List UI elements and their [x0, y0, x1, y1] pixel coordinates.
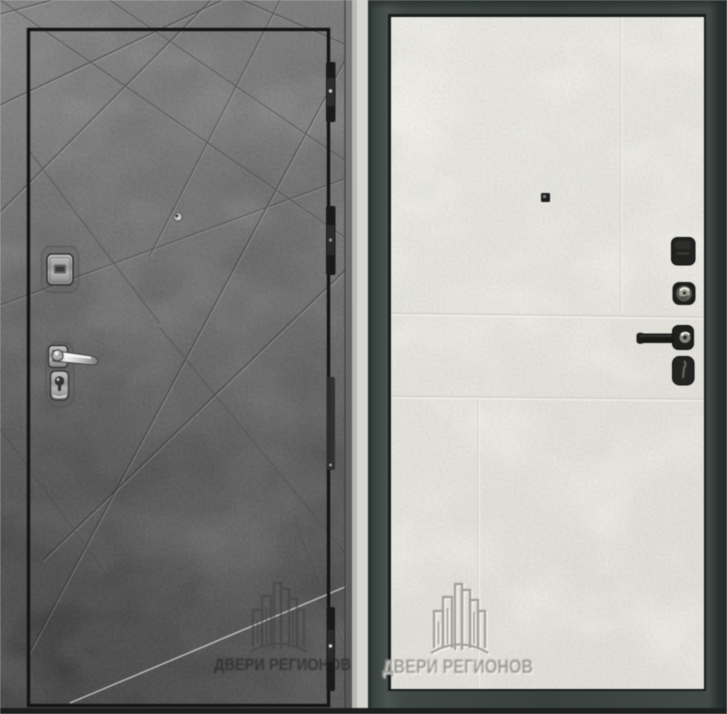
svg-text:ДВЕРИ РЕГИОНОВ: ДВЕРИ РЕГИОНОВ: [382, 657, 533, 678]
svg-text:ДВЕРИ РЕГИОНОВ: ДВЕРИ РЕГИОНОВ: [214, 656, 351, 674]
